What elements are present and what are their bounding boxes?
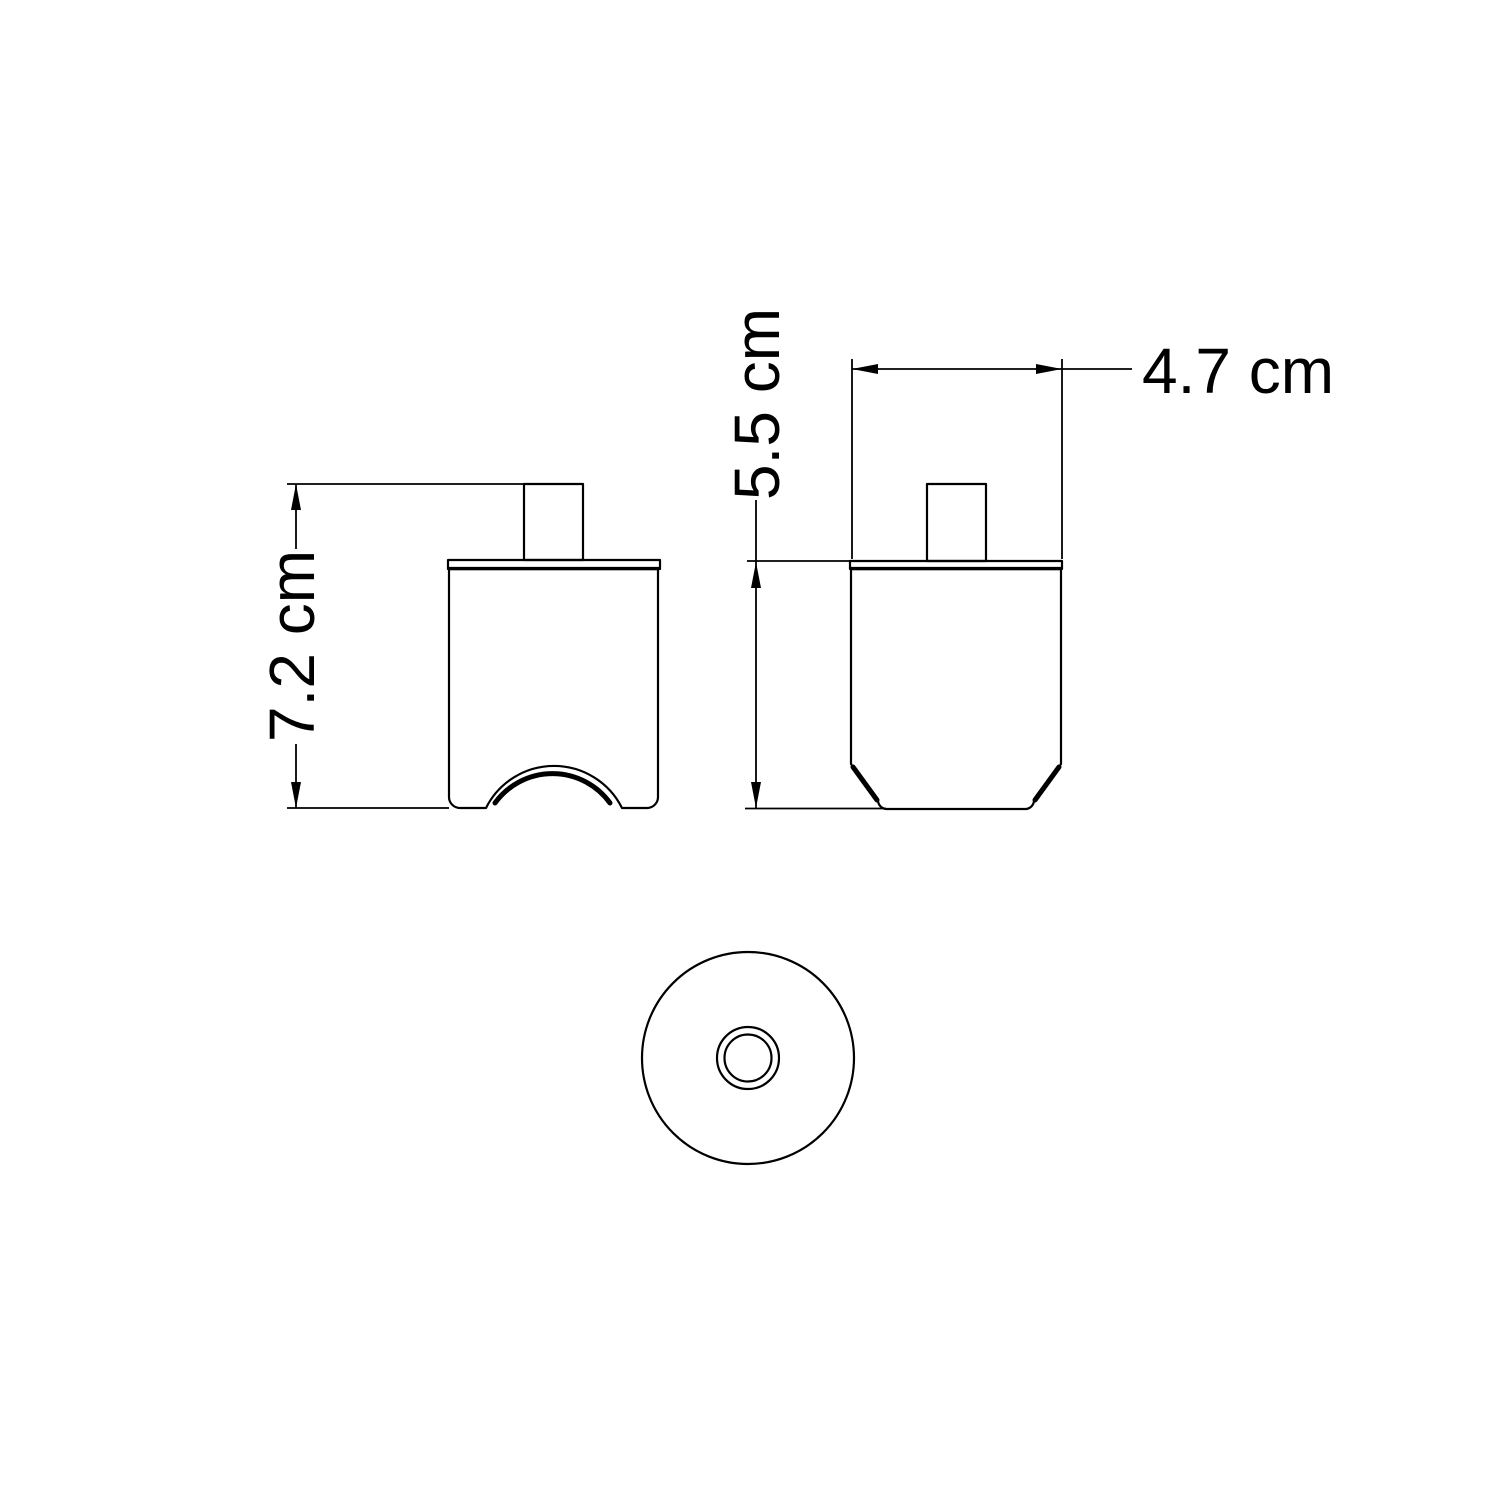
arrow-up-icon: [291, 484, 301, 510]
front-height-dimension: 7.2 cm: [256, 484, 524, 808]
bottom-view-grommet-ring: [717, 1027, 779, 1089]
arrow-down-icon: [751, 782, 761, 808]
side-right-chamfer-edge: [1035, 767, 1059, 800]
bottom-view-outer-circle: [642, 952, 854, 1164]
front-height-dimension-label: 7.2 cm: [256, 550, 328, 742]
side-view: [850, 484, 1062, 809]
side-stub: [927, 484, 986, 561]
front-stub: [524, 484, 583, 560]
arrow-down-icon: [291, 782, 301, 808]
arrow-left-icon: [852, 364, 878, 374]
bottom-view: [642, 952, 854, 1164]
technical-drawing-canvas: 7.2 cm 4.7 cm: [0, 0, 1500, 1500]
front-view: [448, 484, 660, 808]
side-height-dimension-label: 5.5 cm: [721, 308, 793, 500]
arrow-up-icon: [751, 562, 761, 588]
side-body: [851, 569, 1061, 809]
side-left-chamfer-edge: [853, 767, 877, 800]
side-height-dimension: 5.5 cm: [721, 308, 886, 809]
bottom-view-cable-hole: [725, 1035, 772, 1082]
technical-drawing-svg: 7.2 cm 4.7 cm: [0, 0, 1500, 1500]
side-width-dimension: 4.7 cm: [852, 335, 1334, 559]
side-width-dimension-label: 4.7 cm: [1142, 335, 1334, 407]
arrow-right-icon: [1036, 364, 1062, 374]
